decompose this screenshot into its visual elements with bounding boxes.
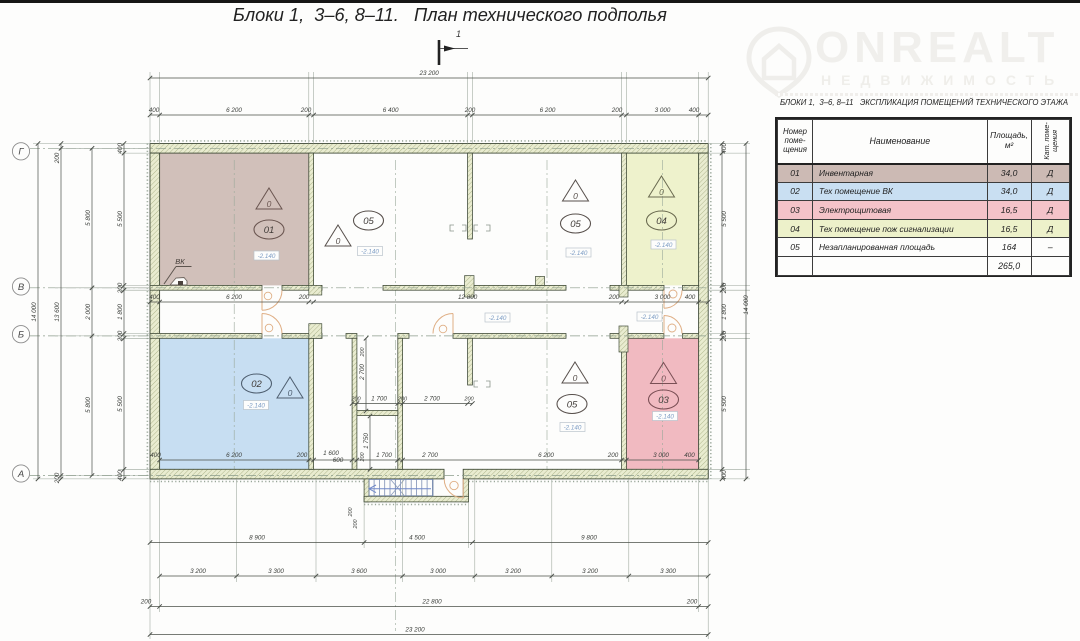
svg-text:-2.140: -2.140 [258,253,276,260]
svg-text:2 700: 2 700 [421,452,438,459]
svg-text:3 300: 3 300 [660,568,676,575]
svg-text:03: 03 [658,395,669,406]
svg-text:В: В [18,282,25,293]
svg-text:3 200: 3 200 [190,568,206,575]
svg-text:0: 0 [336,236,341,246]
svg-text:02: 02 [251,379,262,390]
svg-text:200: 200 [54,472,61,484]
svg-text:12 800: 12 800 [458,294,478,301]
svg-text:3 000: 3 000 [655,107,671,114]
svg-text:0: 0 [267,199,272,209]
svg-text:13 600: 13 600 [54,302,61,322]
svg-text:200: 200 [117,282,124,294]
svg-text:-2.140: -2.140 [489,315,507,322]
svg-text:1 700: 1 700 [371,396,387,403]
svg-text:3 000: 3 000 [653,452,669,459]
svg-text:3 000: 3 000 [430,568,446,575]
svg-text:400: 400 [685,294,696,301]
svg-text:Б: Б [18,330,24,341]
svg-text:05: 05 [567,399,578,410]
svg-text:400: 400 [689,107,700,114]
svg-text:200: 200 [608,294,620,301]
svg-text:23 200: 23 200 [418,70,439,77]
svg-text:200: 200 [298,294,310,301]
svg-text:200: 200 [353,520,359,530]
svg-text:400: 400 [721,470,728,481]
svg-text:200: 200 [350,397,361,403]
svg-text:6 200: 6 200 [226,452,242,459]
svg-text:ВК: ВК [175,257,185,266]
svg-text:200: 200 [607,452,619,459]
svg-text:05: 05 [363,216,374,227]
svg-text:14 000: 14 000 [31,302,38,322]
svg-text:200: 200 [721,330,728,342]
svg-text:1 800: 1 800 [721,304,728,320]
svg-text:5 500: 5 500 [721,396,728,412]
svg-text:400: 400 [117,143,124,154]
svg-text:200: 200 [464,107,476,114]
svg-text:3 300: 3 300 [268,568,284,575]
svg-text:6 200: 6 200 [538,452,554,459]
svg-text:0: 0 [659,187,664,197]
svg-text:-2.140: -2.140 [570,250,588,257]
svg-text:-2.140: -2.140 [564,425,582,432]
svg-text:200: 200 [296,452,308,459]
svg-text:4 500: 4 500 [409,535,425,542]
svg-text:200: 200 [117,330,124,342]
svg-text:400: 400 [684,452,695,459]
svg-text:2 000: 2 000 [85,303,92,320]
svg-text:0: 0 [573,191,578,201]
svg-text:200: 200 [348,508,354,518]
svg-text:5 500: 5 500 [117,396,124,412]
svg-text:200: 200 [140,599,152,606]
svg-text:1 600: 1 600 [323,450,339,457]
svg-text:5 800: 5 800 [85,397,92,413]
svg-text:200: 200 [360,348,366,358]
svg-text:400: 400 [150,452,161,459]
svg-text:200: 200 [721,282,728,294]
svg-text:А: А [17,469,24,480]
svg-text:400: 400 [149,294,160,301]
svg-text:3 000: 3 000 [655,294,671,301]
svg-text:200: 200 [300,107,312,114]
svg-text:14 000: 14 000 [743,295,750,315]
svg-text:5 500: 5 500 [721,211,728,227]
svg-text:-2.140: -2.140 [655,242,673,249]
svg-text:200: 200 [360,453,366,463]
svg-text:200: 200 [397,397,408,403]
svg-text:Г: Г [18,147,24,158]
svg-text:01: 01 [264,225,275,236]
svg-text:200: 200 [54,152,61,164]
svg-text:400: 400 [721,143,728,154]
svg-text:2 700: 2 700 [359,364,366,381]
svg-text:1 750: 1 750 [363,433,370,449]
svg-text:400: 400 [149,107,160,114]
svg-text:200: 200 [463,397,474,403]
svg-text:5 800: 5 800 [85,210,92,226]
svg-text:1 800: 1 800 [117,304,124,320]
svg-text:6 400: 6 400 [383,107,399,114]
svg-text:-2.140: -2.140 [361,249,379,256]
svg-text:-2.140: -2.140 [247,403,265,410]
svg-text:6 200: 6 200 [540,107,556,114]
svg-text:3 600: 3 600 [351,568,367,575]
svg-text:5 500: 5 500 [117,211,124,227]
svg-text:3 200: 3 200 [505,568,521,575]
svg-text:2 700: 2 700 [423,396,440,403]
svg-text:-2.140: -2.140 [641,314,659,321]
svg-text:04: 04 [656,216,667,227]
svg-text:05: 05 [570,219,581,230]
svg-text:6 200: 6 200 [226,294,242,301]
svg-text:200: 200 [611,107,623,114]
svg-text:22 800: 22 800 [421,599,442,606]
svg-text:9 800: 9 800 [581,535,597,542]
svg-text:3 200: 3 200 [582,568,598,575]
svg-text:400: 400 [117,470,124,481]
svg-text:1 700: 1 700 [376,452,392,459]
svg-text:1: 1 [456,29,461,39]
svg-text:200: 200 [686,599,698,606]
svg-text:6 200: 6 200 [226,107,242,114]
svg-text:600: 600 [333,457,344,464]
svg-text:0: 0 [661,374,666,384]
svg-text:-2.140: -2.140 [656,414,674,421]
svg-text:0: 0 [573,373,578,383]
svg-text:0: 0 [288,388,293,398]
svg-text:8 900: 8 900 [249,535,265,542]
svg-text:23 200: 23 200 [404,627,425,634]
